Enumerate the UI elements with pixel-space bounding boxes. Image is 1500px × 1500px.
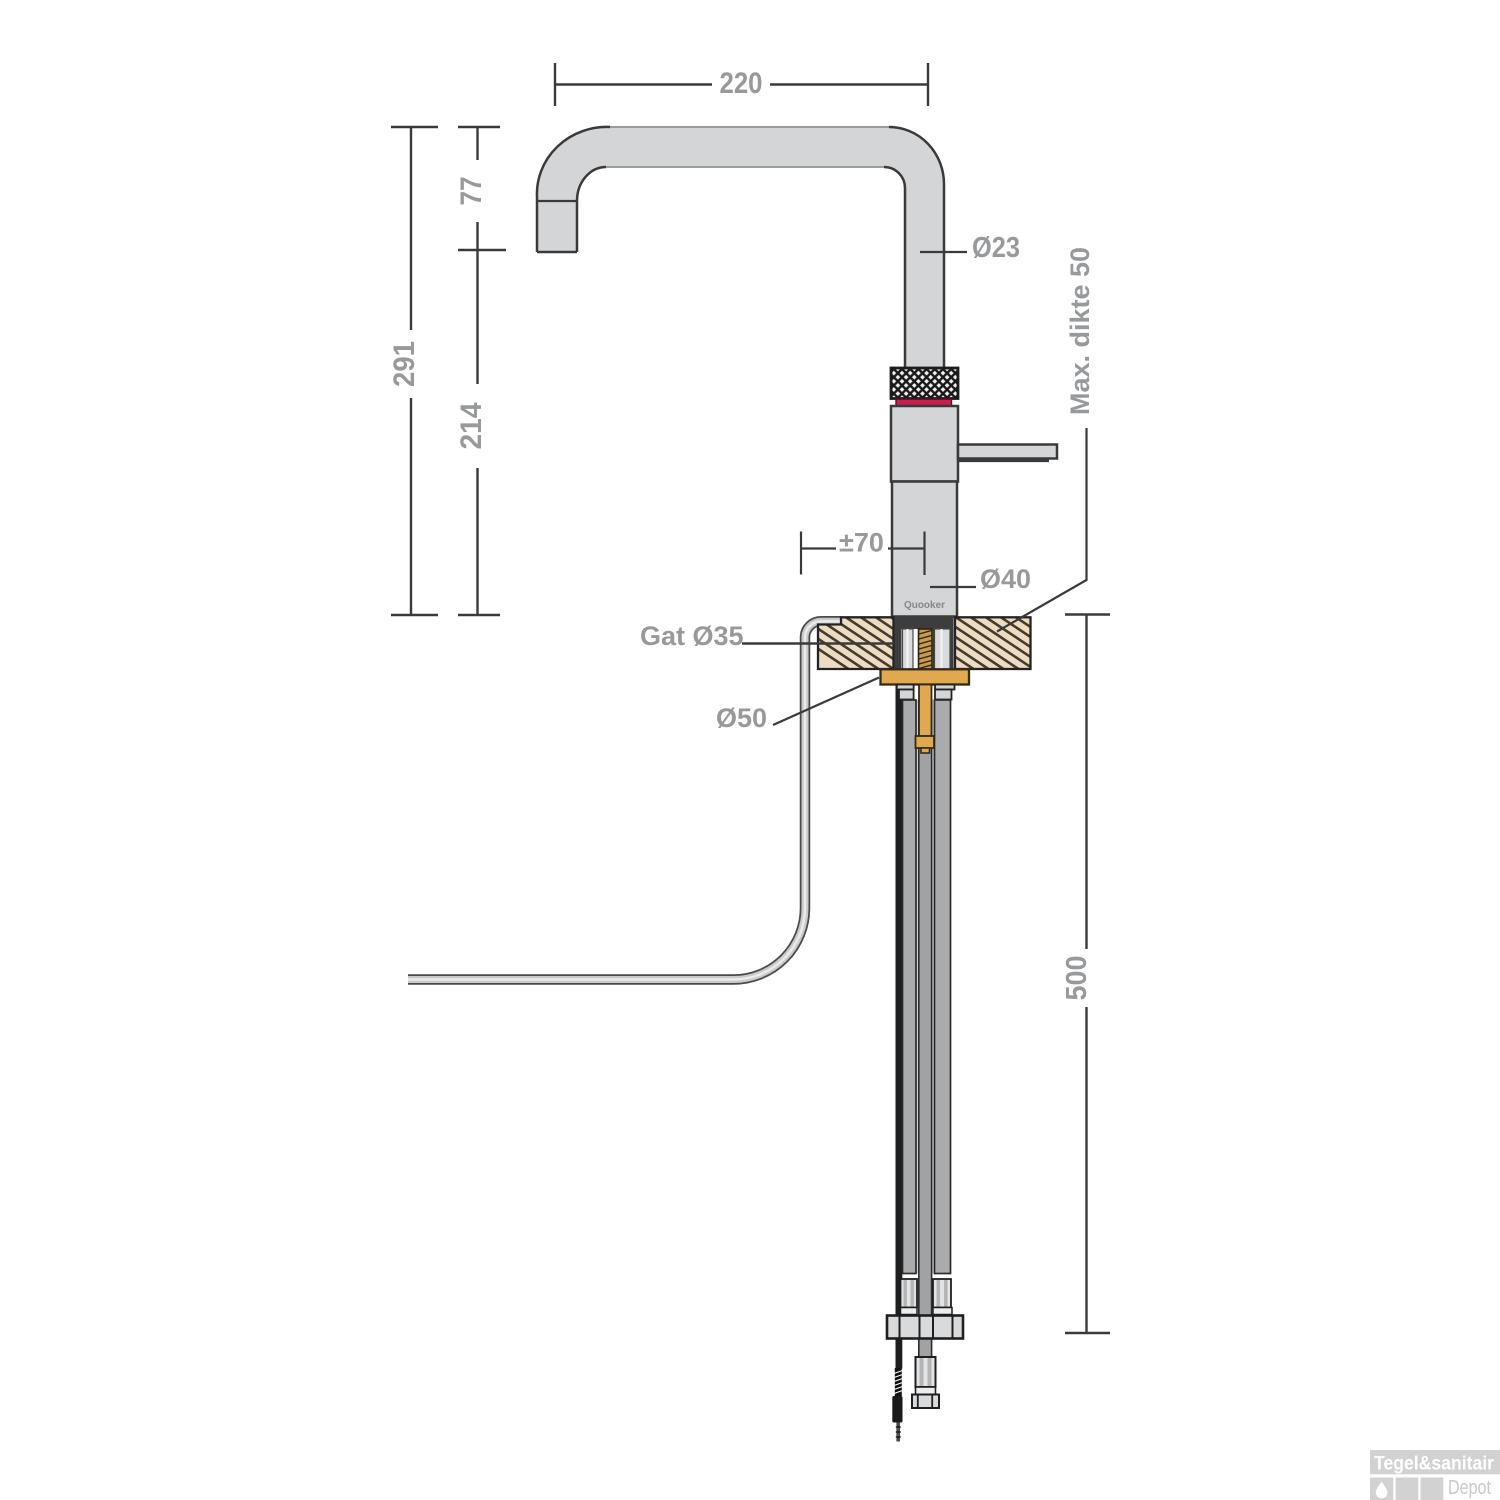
svg-text:214: 214	[455, 402, 488, 449]
svg-text:291: 291	[388, 341, 421, 387]
svg-text:±70: ±70	[839, 528, 884, 558]
svg-text:Depot: Depot	[1448, 1477, 1491, 1499]
svg-text:77: 77	[455, 177, 488, 206]
svg-text:500: 500	[1061, 956, 1093, 1001]
svg-text:Max. dikte 50: Max. dikte 50	[1065, 247, 1095, 415]
svg-text:Gat Ø35: Gat Ø35	[640, 621, 744, 651]
svg-text:220: 220	[720, 67, 763, 100]
svg-text:Ø23: Ø23	[972, 232, 1020, 264]
svg-text:Ø50: Ø50	[716, 703, 767, 733]
svg-text:Ø40: Ø40	[980, 564, 1031, 594]
svg-text:Quooker: Quooker	[904, 600, 945, 611]
svg-text:Tegel&sanitair: Tegel&sanitair	[1374, 1454, 1495, 1475]
